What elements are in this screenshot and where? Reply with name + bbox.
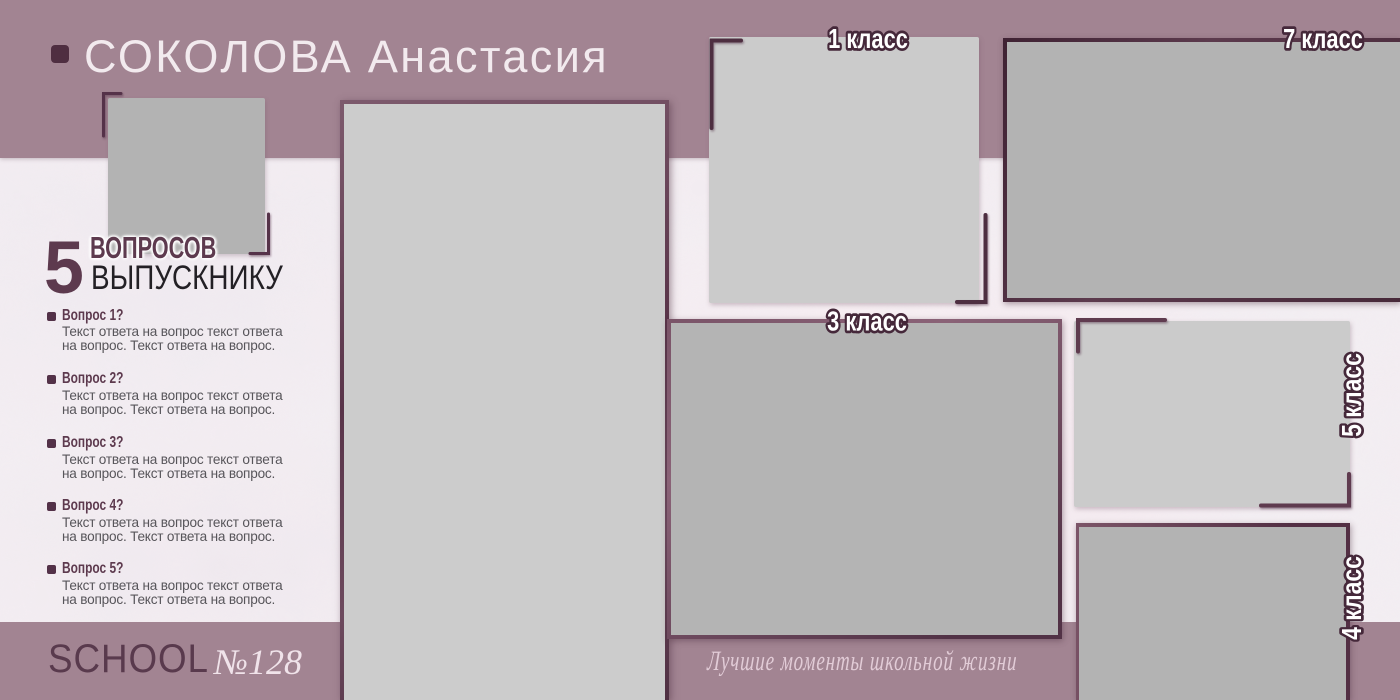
svg-text:3 класс: 3 класс bbox=[827, 306, 907, 337]
svg-text:1 класс: 1 класс bbox=[828, 23, 908, 54]
svg-text:7 класс: 7 класс bbox=[1283, 23, 1363, 54]
svg-text:4 класс: 4 класс bbox=[1337, 556, 1368, 640]
svg-text:5 класс: 5 класс bbox=[1337, 353, 1368, 437]
